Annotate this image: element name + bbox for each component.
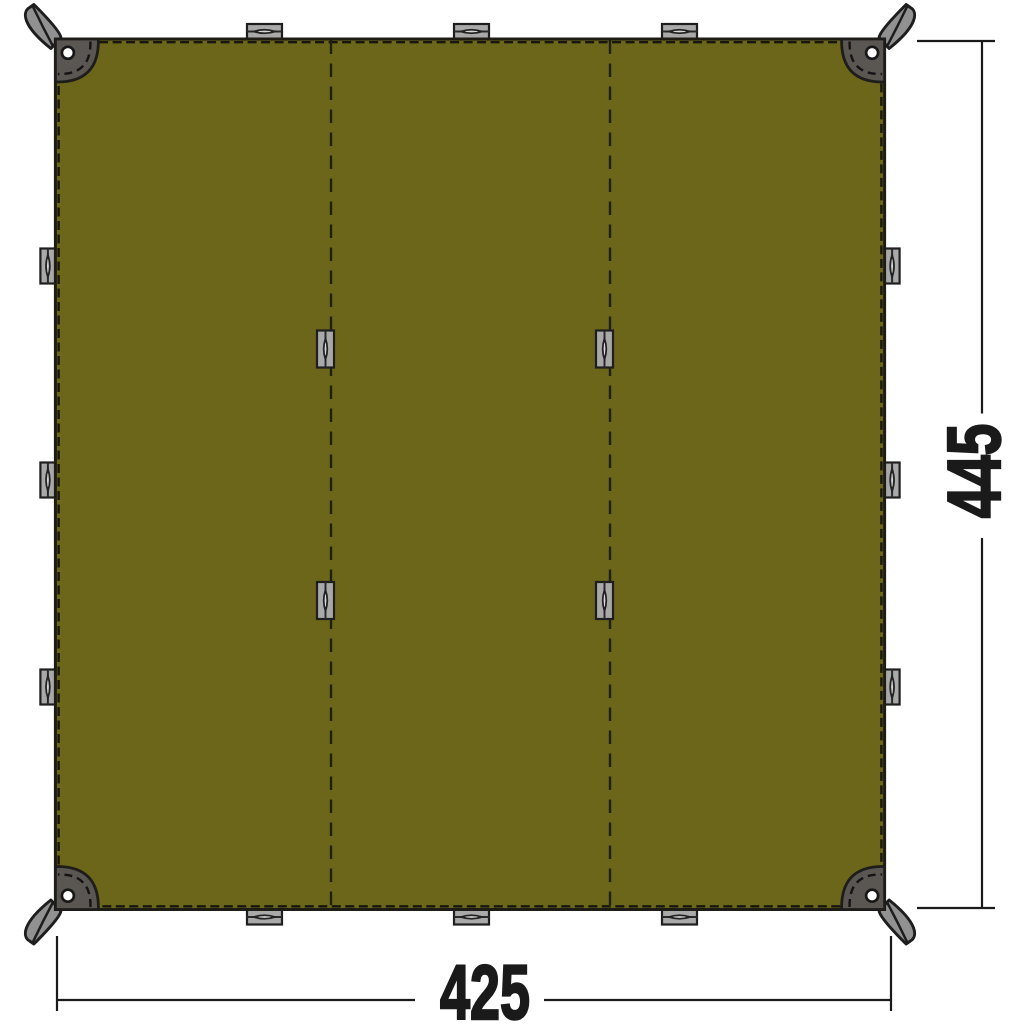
svg-text:445: 445 <box>933 424 1017 518</box>
svg-text:425: 425 <box>440 951 530 1024</box>
